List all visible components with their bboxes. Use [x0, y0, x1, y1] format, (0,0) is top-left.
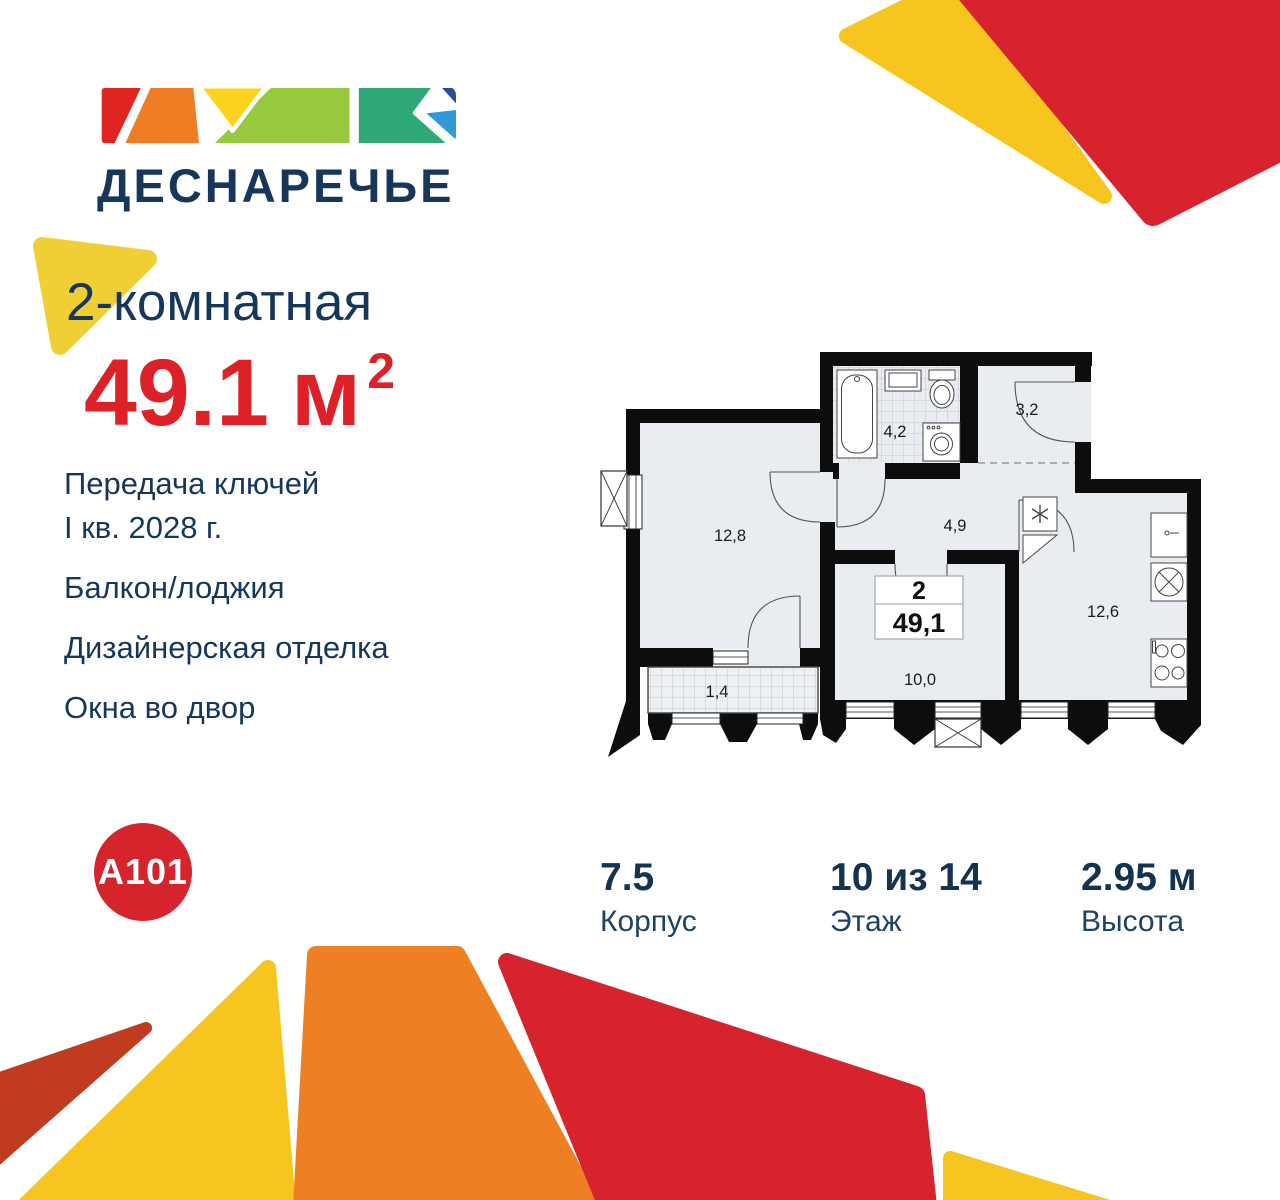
- area-superscript: 2: [367, 346, 395, 396]
- stat-building: 7.5 Корпус: [600, 856, 697, 939]
- kitchen-sink-icon: [1151, 513, 1187, 557]
- apartment-type-title: 2-комнатная: [66, 272, 372, 333]
- area-unit: м: [291, 344, 361, 444]
- feature-balcony: Балкон/лоджия: [64, 566, 389, 610]
- stat-height: 2.95 м Высота: [1081, 856, 1197, 939]
- toilet-icon: [929, 370, 955, 408]
- bathtub-icon: [837, 370, 877, 458]
- feature-list: Передача ключей I кв. 2028 г. Балкон/лод…: [64, 462, 389, 730]
- brand-name: ДЕСНАРЕЧЬЕ: [97, 158, 455, 213]
- label-entry-hall: 3,2: [1016, 401, 1039, 419]
- mosaic-darkblue-piece: [438, 86, 456, 108]
- apartment-badge: 2 49,1: [875, 576, 963, 639]
- stat-building-value: 7.5: [600, 856, 697, 900]
- label-corridor: 4,9: [944, 517, 967, 535]
- feature-keys-date: Передача ключей I кв. 2028 г.: [64, 462, 389, 550]
- stat-floor-label: Этаж: [830, 905, 982, 939]
- listing-card: ДЕСНАРЕЧЬЕ 2-комнатная 49.1 м 2 Передача…: [0, 0, 1280, 1200]
- brand-logo-mosaic: [100, 86, 456, 145]
- label-bedroom: 10,0: [904, 671, 936, 689]
- washing-machine-icon: [923, 423, 960, 461]
- stat-height-label: Высота: [1081, 905, 1197, 939]
- label-living-room: 12,8: [714, 527, 746, 545]
- stat-building-label: Корпус: [600, 905, 697, 939]
- feature-windows: Окна во двор: [64, 686, 389, 730]
- developer-logo: A101: [94, 823, 192, 921]
- badge-total-area: 49,1: [893, 608, 946, 638]
- label-balcony: 1,4: [706, 683, 729, 701]
- area-value: 49.1: [84, 344, 269, 444]
- hob-icon: [1151, 563, 1187, 601]
- stat-floor-value: 10 из 14: [830, 856, 982, 900]
- label-kitchen: 12,6: [1087, 603, 1119, 621]
- fridge-icon: [1023, 497, 1057, 531]
- feature-finishing: Дизайнерская отделка: [64, 626, 389, 670]
- bath-sink-icon: [885, 370, 921, 391]
- stat-floor: 10 из 14 Этаж: [830, 856, 982, 939]
- stat-height-value: 2.95 м: [1081, 856, 1197, 900]
- developer-logo-text: A101: [98, 851, 188, 893]
- apartment-area: 49.1 м 2: [84, 344, 395, 444]
- stove-icon: [1151, 639, 1187, 687]
- badge-rooms-count: 2: [912, 577, 926, 605]
- label-bathroom: 4,2: [884, 423, 907, 441]
- decor-bottom-right-yellow-triangle: [950, 1158, 1106, 1200]
- floor-plan: 12,8 4,2 3,2 4,9 10,0 12,6 1,4 2 49,1: [595, 345, 1210, 770]
